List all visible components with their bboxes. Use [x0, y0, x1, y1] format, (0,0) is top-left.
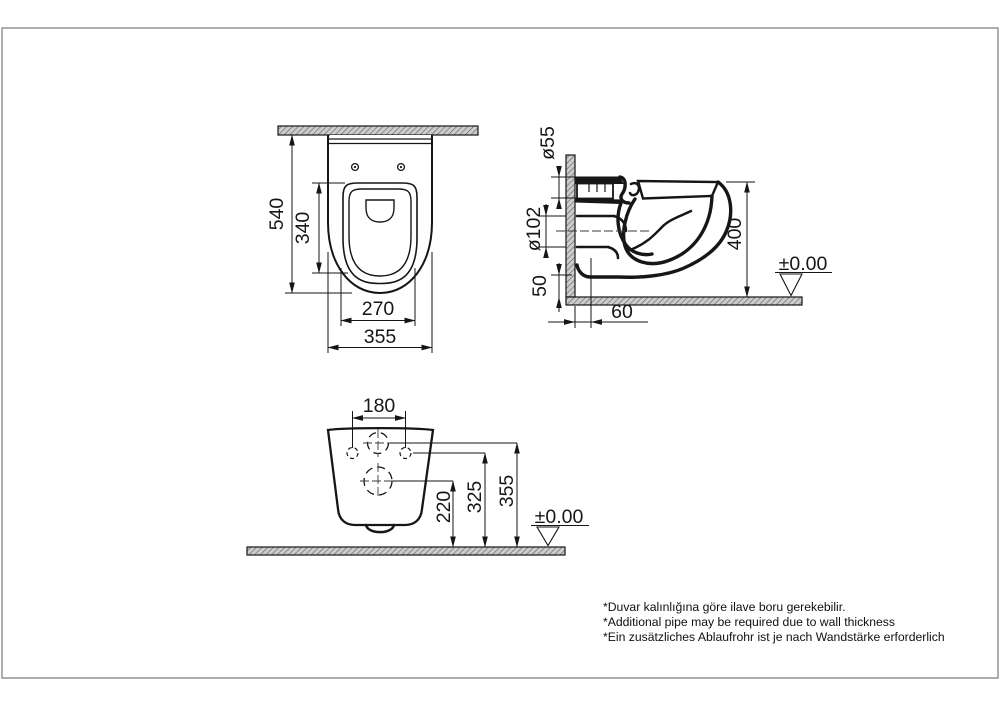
dim-label-355-rear: 355: [496, 475, 518, 508]
top-view-plan: 540 340 270 355: [266, 126, 478, 353]
fixing-hole-right: [398, 164, 405, 171]
sheet-frame: [2, 28, 998, 678]
rear-view: 180 220 325 355 ±0.00: [247, 395, 589, 555]
datum-label-side: ±0.00: [779, 253, 828, 275]
datum-triangle-side: [780, 274, 802, 296]
floor-hatch-bar-rear: [247, 547, 565, 555]
datum-triangle-rear: [537, 527, 559, 546]
dim-label-400: 400: [724, 218, 746, 251]
floor-datum-rear: ±0.00: [531, 506, 589, 546]
dim-label-270: 270: [362, 298, 395, 320]
dim-label-inlet-d: ø55: [537, 126, 559, 160]
toilet-section-outline: [556, 177, 731, 277]
side-view-section: ø55 ø102 50 400 60: [523, 126, 832, 328]
floor-datum-side: ±0.00: [775, 253, 832, 296]
floor-hatch-bar-side: [566, 297, 802, 305]
dim-label-540: 540: [266, 198, 288, 231]
dim-label-340: 340: [292, 212, 314, 245]
dim-label-60: 60: [611, 301, 633, 323]
footnote-english: *Additional pipe may be required due to …: [603, 615, 945, 630]
toilet-rear-outline: [328, 428, 433, 532]
dim-label-180: 180: [363, 395, 396, 417]
wall-hatch-bar-side: [566, 155, 575, 297]
flush-area: [366, 200, 394, 222]
dim-label-220: 220: [433, 491, 455, 524]
dim-325: 325: [464, 453, 486, 547]
datum-label-rear: ±0.00: [535, 506, 584, 528]
dim-label-50: 50: [529, 275, 551, 297]
footnote-block: *Duvar kalınlığına göre ilave boru gerek…: [603, 600, 945, 645]
footnote-turkish: *Duvar kalınlığına göre ilave boru gerek…: [603, 600, 945, 615]
dim-label-355: 355: [364, 326, 397, 348]
fixing-hole-left: [352, 164, 359, 171]
dim-60: 60: [548, 258, 648, 328]
toilet-plan-outline: [328, 135, 432, 293]
technical-drawing-sheet: 540 340 270 355: [0, 0, 1000, 706]
dim-label-outlet-d: ø102: [523, 207, 545, 251]
dim-label-325: 325: [464, 481, 486, 514]
wall-hatch-bar: [278, 126, 478, 135]
footnote-german: *Ein zusätzliches Ablaufrohr ist je nach…: [603, 630, 945, 645]
dim-220: 220: [433, 481, 455, 547]
dim-355-rear: 355: [496, 443, 518, 547]
